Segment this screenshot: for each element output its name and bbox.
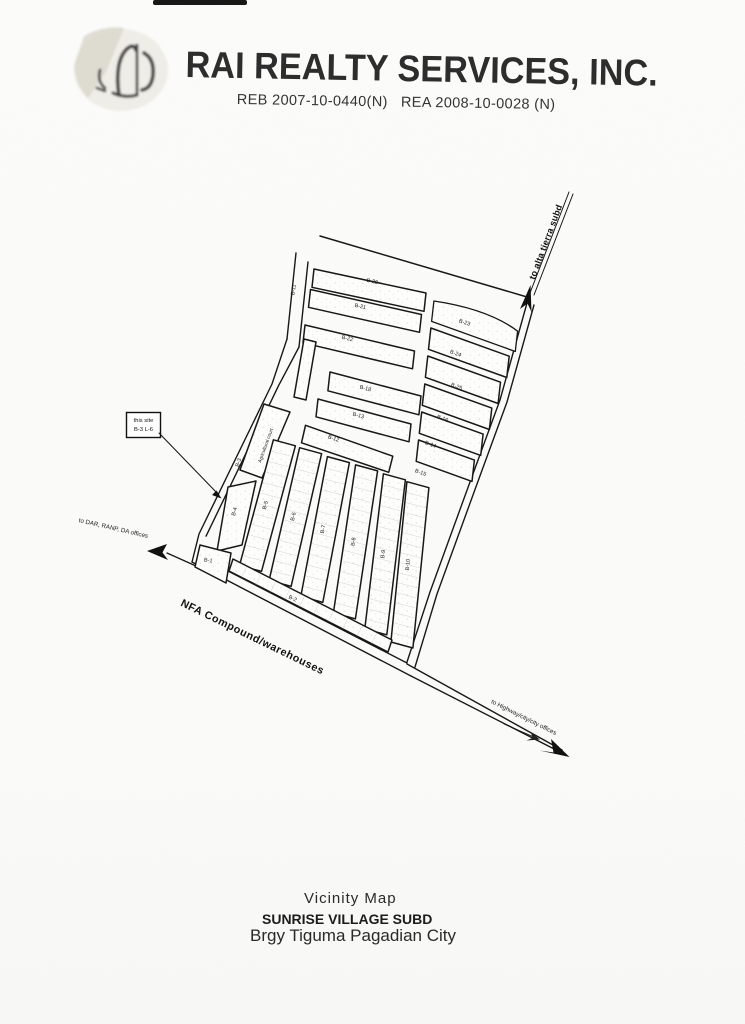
svg-text:this site: this site (134, 418, 154, 424)
svg-text:B-9: B-9 (380, 550, 387, 559)
svg-text:B-3 L-6: B-3 L-6 (134, 427, 153, 433)
svg-text:B-1: B-1 (203, 557, 212, 564)
svg-text:B-8: B-8 (350, 537, 357, 546)
